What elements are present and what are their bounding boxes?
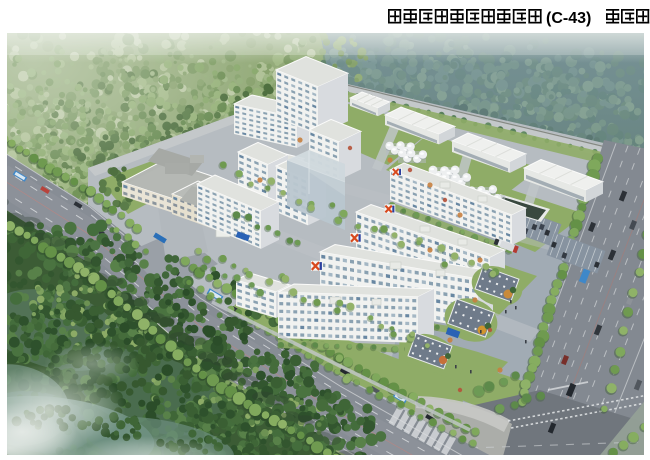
svg-text:(C-43): (C-43) <box>546 10 591 27</box>
